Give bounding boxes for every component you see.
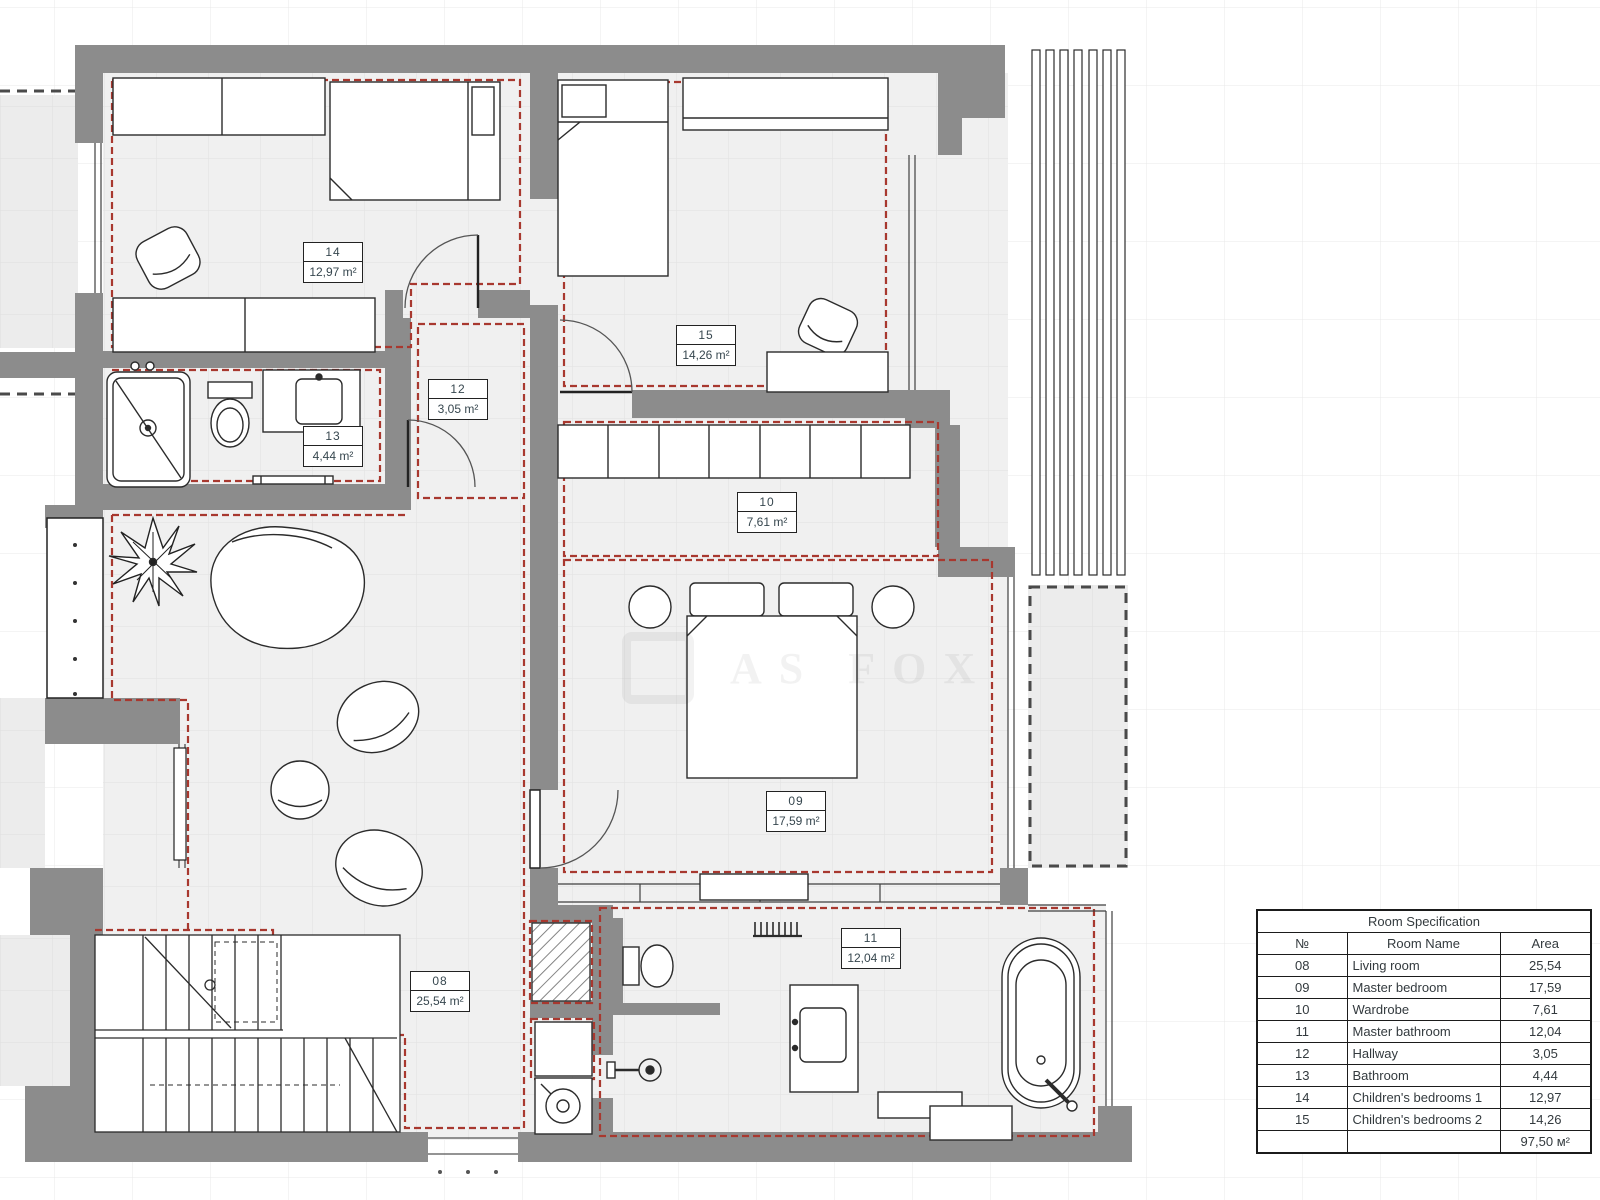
pillow-icon	[690, 583, 764, 616]
room-label-12: 12 3,05 m²	[428, 379, 488, 420]
terrace-left-top	[0, 95, 78, 348]
table-title: Room Specification	[1257, 910, 1591, 933]
bench-icon	[700, 874, 808, 900]
towel-rail-icon	[253, 476, 333, 484]
col-header-no: №	[1257, 933, 1347, 955]
pillow-icon	[779, 583, 853, 616]
wardrobe-icon	[113, 78, 325, 135]
table-header-row: № Room Name Area	[1257, 933, 1591, 955]
table-row: 09 Master bedroom 17,59	[1257, 977, 1591, 999]
room-number: 15	[677, 326, 735, 345]
room-area: 14,26 m²	[677, 345, 735, 365]
washer-icon	[535, 1078, 592, 1134]
room-area: 12,97 m²	[304, 262, 362, 282]
room-number: 13	[304, 427, 362, 446]
room-area: 17,59 m²	[767, 811, 825, 831]
nightstand-icon	[629, 586, 671, 628]
bench-icon	[930, 1106, 1012, 1140]
pouf-icon	[271, 761, 329, 819]
total-area: 97,50 м²	[1500, 1131, 1591, 1154]
vanity-icon	[790, 985, 858, 1092]
shaft-hatched	[532, 923, 590, 1001]
table-row: 12 Hallway 3,05	[1257, 1043, 1591, 1065]
room-area: 7,61 m²	[738, 512, 796, 532]
table-title-row: Room Specification	[1257, 910, 1591, 933]
table-row: 08 Living room 25,54	[1257, 955, 1591, 977]
room-number: 09	[767, 792, 825, 811]
floor-plan-page: AS FOX 14 12,97 m² 15 14,26 m² 12 3,05 m…	[0, 0, 1600, 1200]
table-row: 11 Master bathroom 12,04	[1257, 1021, 1591, 1043]
bathtub-icon	[1002, 938, 1080, 1111]
room-label-08: 08 25,54 m²	[410, 971, 470, 1012]
room-label-10: 10 7,61 m²	[737, 492, 797, 533]
room-number: 10	[738, 493, 796, 512]
room-label-11: 11 12,04 m²	[841, 928, 901, 969]
room-spec-table: Room Specification № Room Name Area 08 L…	[1256, 909, 1592, 1154]
room-number: 11	[842, 929, 900, 948]
room-label-14: 14 12,97 m²	[303, 242, 363, 283]
room-number: 12	[429, 380, 487, 399]
double-bed-icon	[687, 616, 857, 778]
toilet-icon	[208, 382, 252, 447]
closet-icon	[535, 1022, 592, 1076]
toilet-icon	[623, 945, 673, 987]
room-number: 14	[304, 243, 362, 262]
terrace-left-mid	[0, 698, 45, 868]
col-header-name: Room Name	[1347, 933, 1500, 955]
room-number: 08	[411, 972, 469, 991]
table-row: 15 Children's bedrooms 2 14,26	[1257, 1109, 1591, 1131]
room-area: 25,54 m²	[411, 991, 469, 1011]
wardrobe-icon	[683, 78, 888, 130]
table-row: 14 Children's bedrooms 1 12,97	[1257, 1087, 1591, 1109]
room-area: 3,05 m²	[429, 399, 487, 419]
terrace-left-bottom	[0, 935, 70, 1086]
staircase	[95, 935, 400, 1132]
room-area: 12,04 m²	[842, 948, 900, 968]
room-label-13: 13 4,44 m²	[303, 426, 363, 467]
wardrobe-room-cabinets	[558, 425, 910, 478]
desk-icon	[767, 352, 888, 392]
vanity-icon	[263, 370, 360, 432]
pergola-slats	[1032, 50, 1125, 575]
room-area: 4,44 m²	[304, 446, 362, 466]
terrace-right	[1028, 585, 1128, 868]
nightstand-icon	[872, 586, 914, 628]
table-row: 10 Wardrobe 7,61	[1257, 999, 1591, 1021]
room-label-15: 15 14,26 m²	[676, 325, 736, 366]
table-total-row: 97,50 м²	[1257, 1131, 1591, 1154]
desk-icon	[113, 298, 375, 352]
radiator-living	[174, 748, 186, 860]
room-label-09: 09 17,59 m²	[766, 791, 826, 832]
table-row: 13 Bathroom 4,44	[1257, 1065, 1591, 1087]
sofa-icon	[211, 527, 365, 649]
col-header-area: Area	[1500, 933, 1591, 955]
